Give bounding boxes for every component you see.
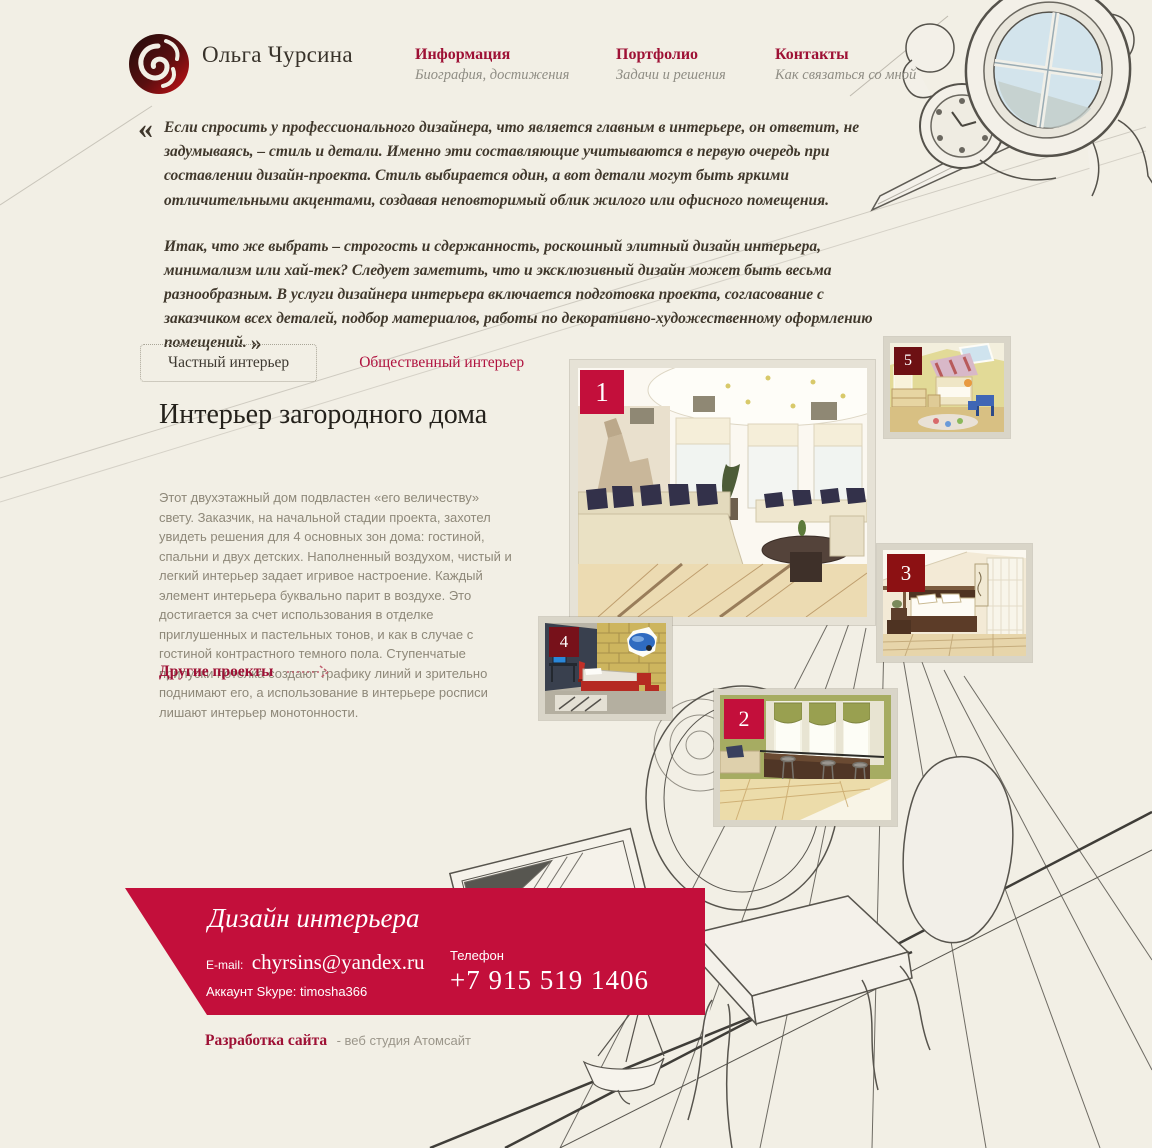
phone-block: Телефон +7 915 519 1406	[450, 948, 649, 996]
gallery-image-living-room[interactable]: 1	[570, 360, 875, 625]
gallery-thumb-bar-room[interactable]: 2	[714, 689, 897, 826]
tab-public-interior[interactable]: Общественный интерьер	[359, 354, 524, 372]
photo-number-badge: 5	[894, 347, 922, 375]
portfolio-tabs: Частный интерьер Общественный интерьер	[140, 344, 524, 382]
nav-sublabel: Как связаться со мной	[775, 67, 916, 84]
banner-title: Дизайн интерьера	[208, 903, 420, 934]
nav-sublabel: Биография, достижения	[415, 67, 569, 84]
nav-label[interactable]: Информация	[415, 46, 569, 64]
tab-private-interior[interactable]: Частный интерьер	[140, 344, 317, 382]
email-row: E-mail: chyrsins@yandex.ru	[206, 950, 425, 975]
project-title: Интерьер загородного дома	[159, 398, 519, 432]
site-title: Ольга Чурсина	[202, 42, 353, 68]
quote-paragraph-1: Если спросить у профессионального дизайн…	[140, 116, 875, 213]
nav-item-contacts[interactable]: Контакты Как связаться со мной	[775, 46, 916, 84]
developer-text: - веб студия Атомсайт	[337, 1033, 471, 1048]
quote-paragraph-2: Итак, что же выбрать – строгость и сдерж…	[140, 235, 875, 356]
email-label: E-mail:	[206, 958, 243, 972]
gallery-thumb-kids-room[interactable]: 5	[884, 337, 1010, 438]
intro-quote: « Если спросить у профессионального диза…	[140, 116, 875, 356]
nav-sublabel: Задачи и решения	[616, 67, 726, 84]
logo-swirl-icon[interactable]	[127, 32, 191, 96]
nav-item-information[interactable]: Информация Биография, достижения	[415, 46, 569, 84]
other-projects-link[interactable]: Другие проекты	[159, 663, 331, 681]
phone-label: Телефон	[450, 948, 649, 963]
skype-label: Аккаунт Skype:	[206, 984, 296, 999]
contact-banner: Дизайн интерьера E-mail: chyrsins@yandex…	[125, 888, 705, 1015]
skype-value: timosha366	[300, 984, 367, 999]
developer-link[interactable]: Разработка сайта	[205, 1032, 327, 1049]
nav-label[interactable]: Портфолио	[616, 46, 726, 64]
project-description: Этот двухэтажный дом подвластен «его вел…	[159, 488, 515, 722]
photo-number-badge: 4	[549, 627, 579, 657]
nav-label[interactable]: Контакты	[775, 46, 916, 64]
site-credits: Разработка сайта - веб студия Атомсайт	[205, 1032, 471, 1050]
photo-number-badge: 3	[887, 554, 925, 592]
gallery-thumb-bedroom[interactable]: 3	[877, 544, 1032, 662]
email-value[interactable]: chyrsins@yandex.ru	[252, 950, 425, 974]
photo-number-badge: 2	[724, 699, 764, 739]
header: Ольга Чурсина Информация Биография, дост…	[0, 0, 1152, 110]
gallery-thumb-teen-room[interactable]: 4	[539, 617, 672, 720]
skype-row: Аккаунт Skype: timosha366	[206, 984, 367, 999]
quote-open-icon: «	[138, 114, 153, 144]
nav-item-portfolio[interactable]: Портфолио Задачи и решения	[616, 46, 726, 84]
phone-number: +7 915 519 1406	[450, 965, 649, 996]
page: Ольга Чурсина Информация Биография, дост…	[0, 0, 1152, 1148]
photo-number-badge: 1	[580, 370, 624, 414]
dotted-arrow-icon	[287, 665, 331, 679]
